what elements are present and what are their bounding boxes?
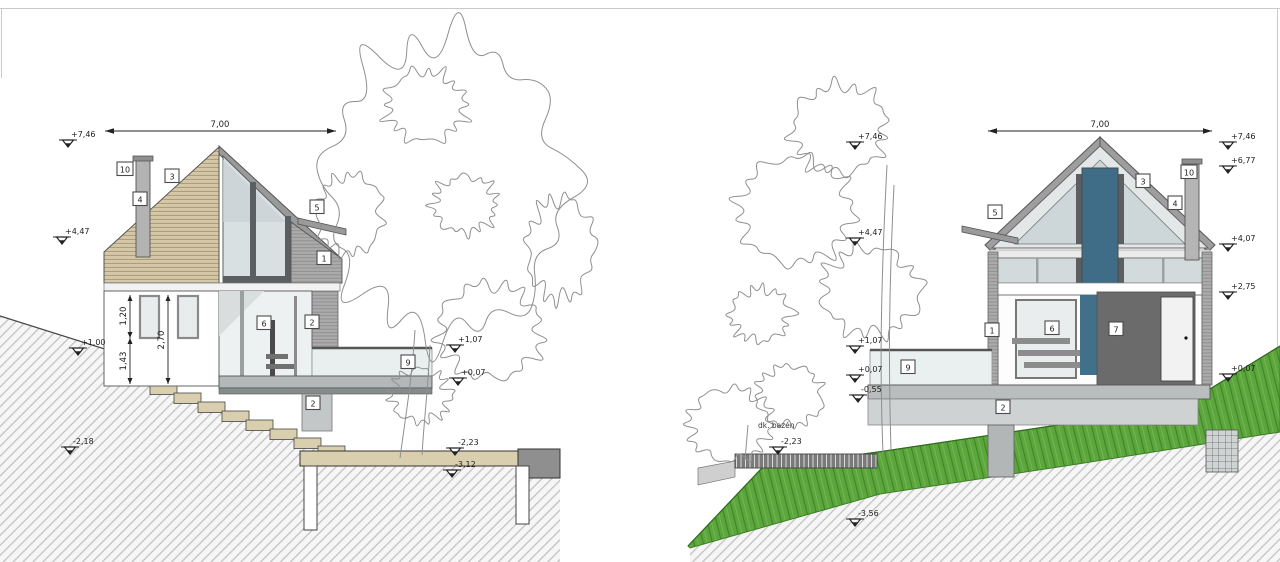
pier: [988, 425, 1014, 477]
right-section-drawing: 7,00 +7,46 +4,47 +1,07 +0,07 -0,55 dk. b…: [640, 0, 1280, 562]
glass-balustrade: [870, 350, 992, 385]
svg-text:2: 2: [1000, 404, 1005, 413]
width-dimension: 7,00: [988, 120, 1212, 134]
width-dim-text: 7,00: [1091, 120, 1110, 130]
tree-canopy-outline: [431, 278, 547, 381]
level-value: +1,07: [858, 336, 883, 345]
tag-balustrade: 9: [401, 355, 415, 369]
tag-roof: 3: [1136, 174, 1150, 188]
level-value: +7,46: [71, 130, 96, 139]
pool-deck: [300, 451, 518, 466]
width-dimension: 7,00: [105, 120, 336, 134]
dark-window-strip: [1080, 295, 1097, 375]
pool-annotation: dk. bazén: [758, 421, 795, 430]
level-value: +1,00: [81, 338, 106, 347]
level-marker: +7,46: [59, 130, 96, 147]
level-value: +7,46: [858, 132, 883, 141]
svg-text:6: 6: [1049, 325, 1054, 334]
level-value: +0,07: [858, 365, 883, 374]
level-marker: +6,77: [1219, 156, 1256, 173]
tag-eave: 5: [310, 200, 324, 214]
svg-text:10: 10: [1184, 169, 1194, 178]
svg-text:6: 6: [261, 320, 266, 329]
tag-foundation: 2: [996, 400, 1010, 414]
level-marker: +7,46: [1219, 132, 1256, 149]
level-value: +4,07: [1231, 234, 1256, 243]
chimney: [136, 160, 150, 257]
svg-text:1: 1: [321, 255, 326, 264]
tag-wall: 2: [305, 315, 319, 329]
tag-window: 6: [257, 316, 271, 330]
svg-text:5: 5: [992, 209, 997, 218]
path-ledge: [698, 461, 735, 485]
level-value: +0,07: [1231, 364, 1256, 373]
tree-canopy-outline: [784, 76, 889, 177]
level-marker: +4,07: [1219, 234, 1256, 251]
level-value: +1,07: [458, 335, 483, 344]
tag-eave: 5: [988, 205, 1002, 219]
level-value: -0,55: [861, 385, 882, 394]
floor-band: [104, 283, 340, 291]
level-value: +4,47: [65, 227, 90, 236]
tag-chimney: 4: [133, 192, 147, 206]
tag-chimney: 4: [1168, 196, 1182, 210]
svg-text:9: 9: [905, 364, 910, 373]
svg-text:9: 9: [405, 359, 410, 368]
svg-text:10: 10: [120, 166, 130, 175]
door-leaf: [1161, 297, 1193, 381]
corner-board-right: [1202, 252, 1212, 385]
tall-dark-window: [1082, 168, 1118, 292]
tag-chimney-top: 10: [117, 162, 133, 176]
level-value: +7,46: [1231, 132, 1256, 141]
tree-canopy-outline: [317, 13, 588, 362]
height-dim-text: 2,70: [157, 331, 167, 350]
level-marker: +0,07: [449, 368, 486, 385]
tag-window: 6: [1045, 321, 1059, 335]
drawing-sheet: 7,00 1,20 1,43 2,70 +7,46 +4,47 +1,00 -2…: [0, 0, 1280, 562]
tree-canopy-outline: [726, 283, 799, 345]
level-value: -2,23: [781, 437, 802, 446]
deck-pier: [304, 466, 317, 530]
level-value: +4,47: [858, 228, 883, 237]
left-elevation-drawing: 7,00 1,20 1,43 2,70 +7,46 +4,47 +1,00 -2…: [0, 0, 640, 562]
svg-text:2: 2: [310, 400, 315, 409]
svg-text:4: 4: [137, 196, 142, 205]
level-value: -3,56: [858, 509, 879, 518]
level-marker: +4,47: [846, 228, 883, 245]
level-marker: +4,47: [53, 227, 90, 244]
svg-text:3: 3: [1140, 178, 1145, 187]
level-value: -2,18: [73, 437, 94, 446]
deck-pier: [516, 466, 529, 524]
window: [178, 296, 198, 338]
height-dim-text: 1,43: [119, 352, 129, 371]
tag-roof: 3: [165, 169, 179, 183]
level-value: -3,12: [455, 460, 476, 469]
tag-foundation: 2: [306, 396, 320, 410]
level-value: +6,77: [1231, 156, 1256, 165]
tree-canopy-outline: [380, 66, 472, 143]
tag-wall-cladding: 1: [317, 251, 331, 265]
svg-text:5: 5: [314, 204, 319, 213]
pool-fence: [735, 454, 877, 468]
height-dim-text: 1,20: [119, 307, 129, 326]
level-marker: -2,23: [769, 437, 802, 454]
steps-grid: [1206, 430, 1238, 472]
tree-canopy-outline: [426, 173, 500, 239]
terrace-slab: [868, 385, 1210, 399]
level-marker: +1,07: [446, 335, 483, 352]
tag-balustrade: 9: [901, 360, 915, 374]
tag-chimney-top: 10: [1181, 165, 1197, 179]
svg-text:4: 4: [1172, 200, 1177, 209]
level-value: +2,75: [1231, 282, 1256, 291]
svg-text:2: 2: [309, 319, 314, 328]
svg-text:3: 3: [169, 173, 174, 182]
foundation: [868, 399, 1198, 425]
level-value: -2,23: [458, 438, 479, 447]
tag-door: 7: [1109, 322, 1123, 336]
level-value: +0,07: [461, 368, 486, 377]
svg-text:7: 7: [1113, 326, 1118, 335]
width-dim-text: 7,00: [211, 120, 230, 130]
level-marker: +2,75: [1219, 282, 1256, 299]
tag-wall-cladding: 1: [985, 323, 999, 337]
svg-text:1: 1: [989, 327, 994, 336]
